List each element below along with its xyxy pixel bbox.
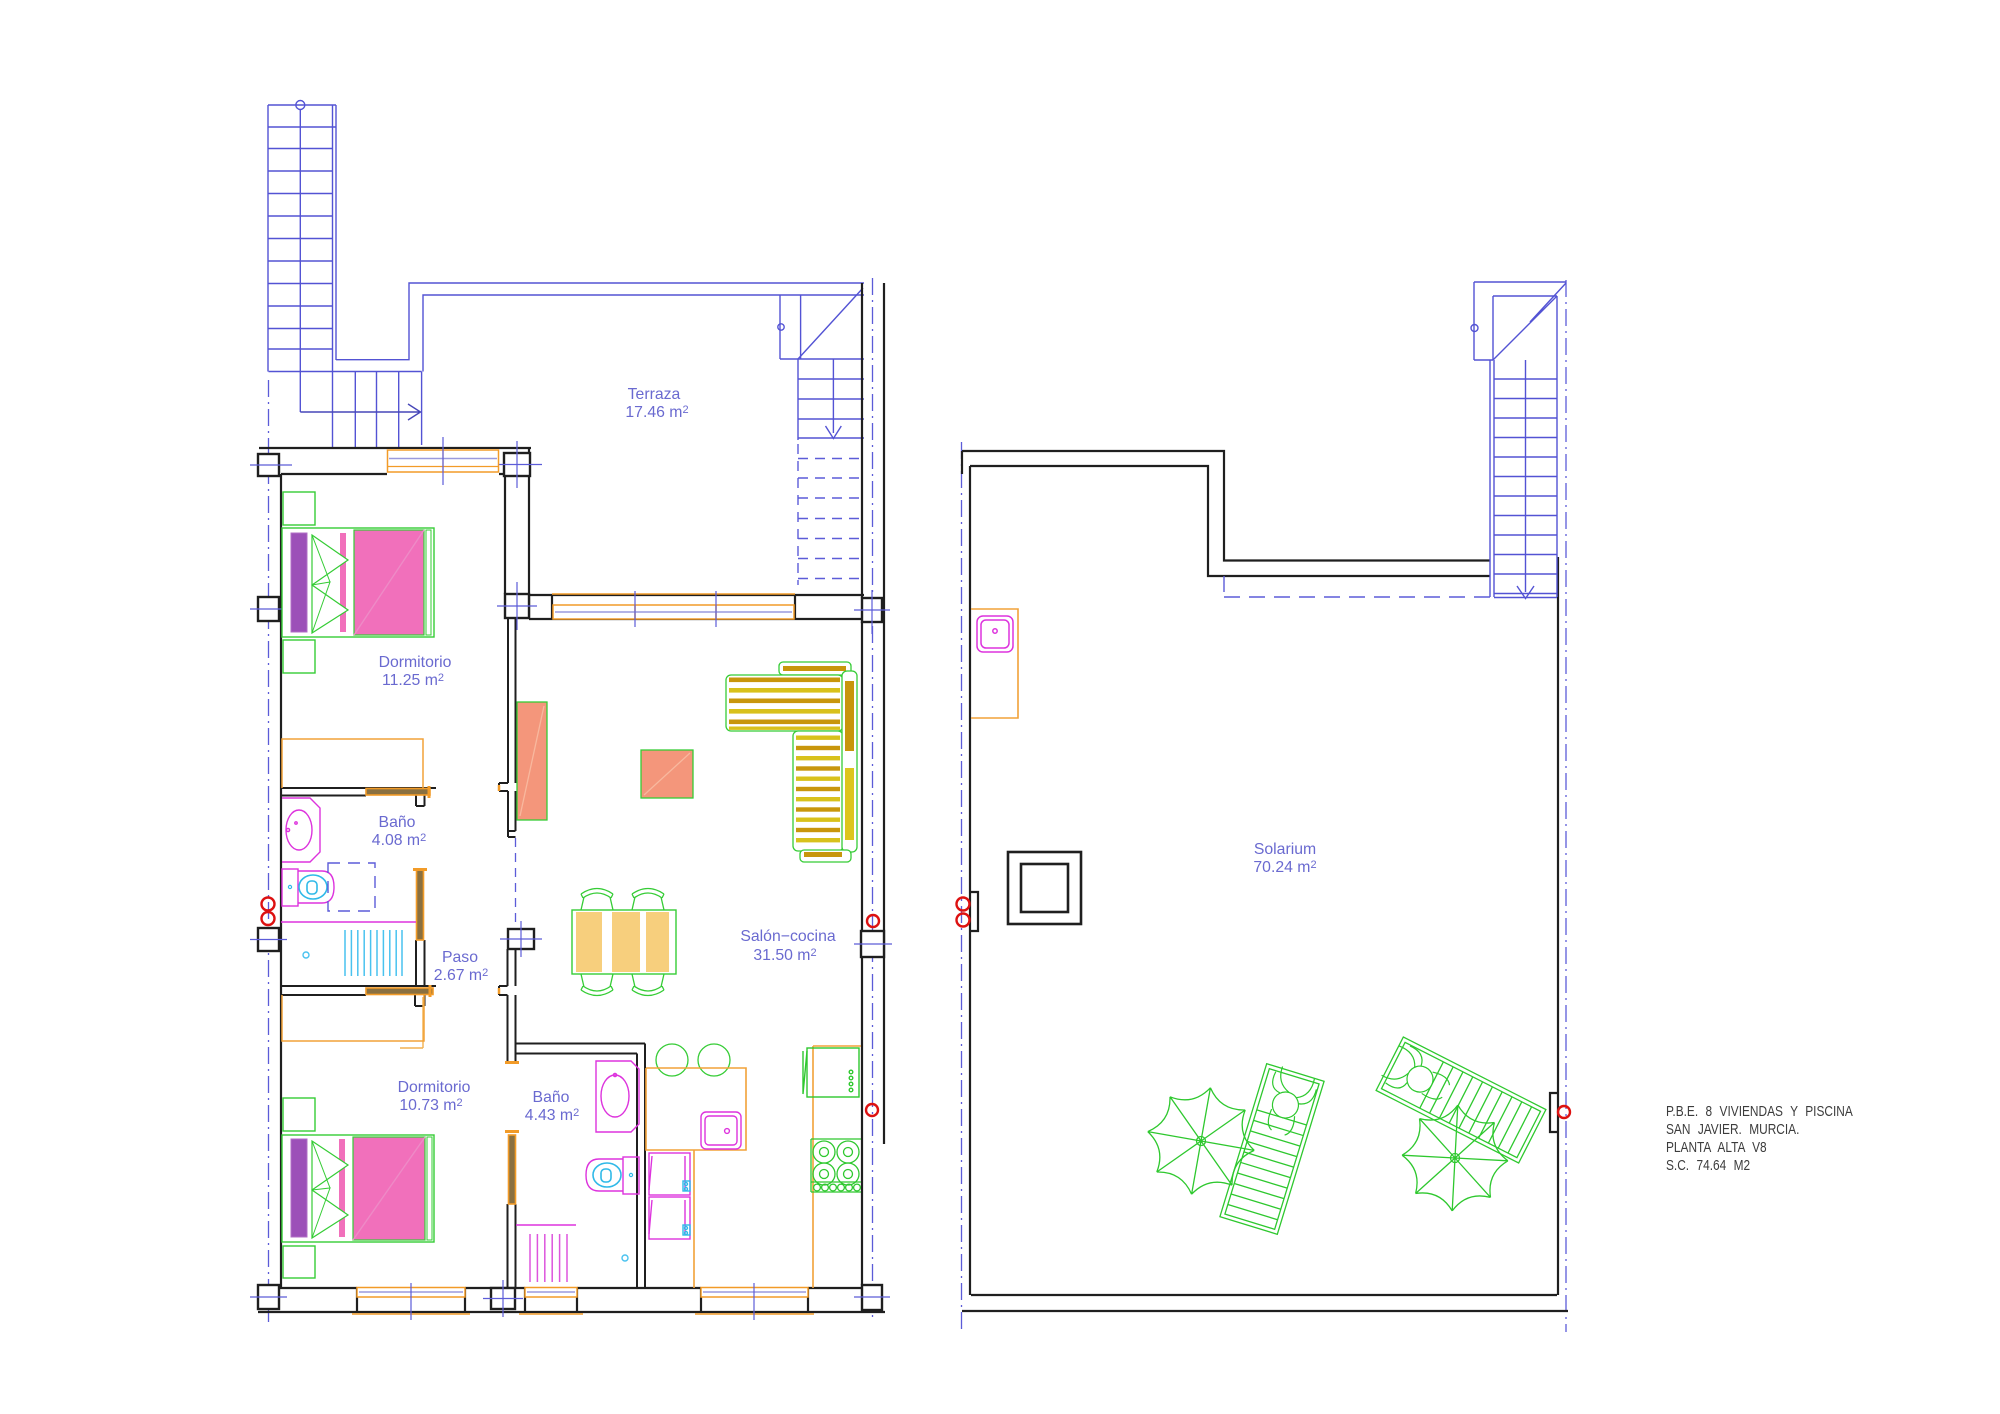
svg-text:Salón−cocina: Salón−cocina [740, 928, 836, 945]
svg-text:10.73 m2: 10.73 m2 [399, 1097, 462, 1114]
svg-text:Dormitorio: Dormitorio [379, 654, 452, 671]
svg-text:Baño: Baño [533, 1089, 570, 1106]
svg-text:4.08 m2: 4.08 m2 [372, 832, 426, 849]
svg-text:Solarium: Solarium [1254, 841, 1316, 858]
svg-text:4.43 m2: 4.43 m2 [525, 1107, 579, 1124]
svg-text:Paso: Paso [442, 949, 478, 966]
svg-text:17.46 m2: 17.46 m2 [625, 404, 688, 421]
svg-text:PLANTA ALTA V8: PLANTA ALTA V8 [1666, 1139, 1767, 1155]
svg-text:SAN JAVIER. MURCIA.: SAN JAVIER. MURCIA. [1666, 1121, 1799, 1137]
svg-text:Terraza: Terraza [628, 386, 681, 403]
svg-text:2.67 m2: 2.67 m2 [434, 967, 488, 984]
svg-text:S.C. 74.64 M2: S.C. 74.64 M2 [1666, 1157, 1750, 1173]
svg-text:Dormitorio: Dormitorio [398, 1079, 471, 1096]
svg-text:Baño: Baño [379, 814, 416, 831]
svg-text:11.25 m2: 11.25 m2 [382, 672, 444, 689]
svg-text:31.50 m2: 31.50 m2 [753, 947, 816, 964]
svg-text:70.24 m2: 70.24 m2 [1253, 859, 1316, 876]
svg-text:P.B.E. 8 VIVIENDAS Y PISCINA: P.B.E. 8 VIVIENDAS Y PISCINA [1666, 1103, 1853, 1119]
